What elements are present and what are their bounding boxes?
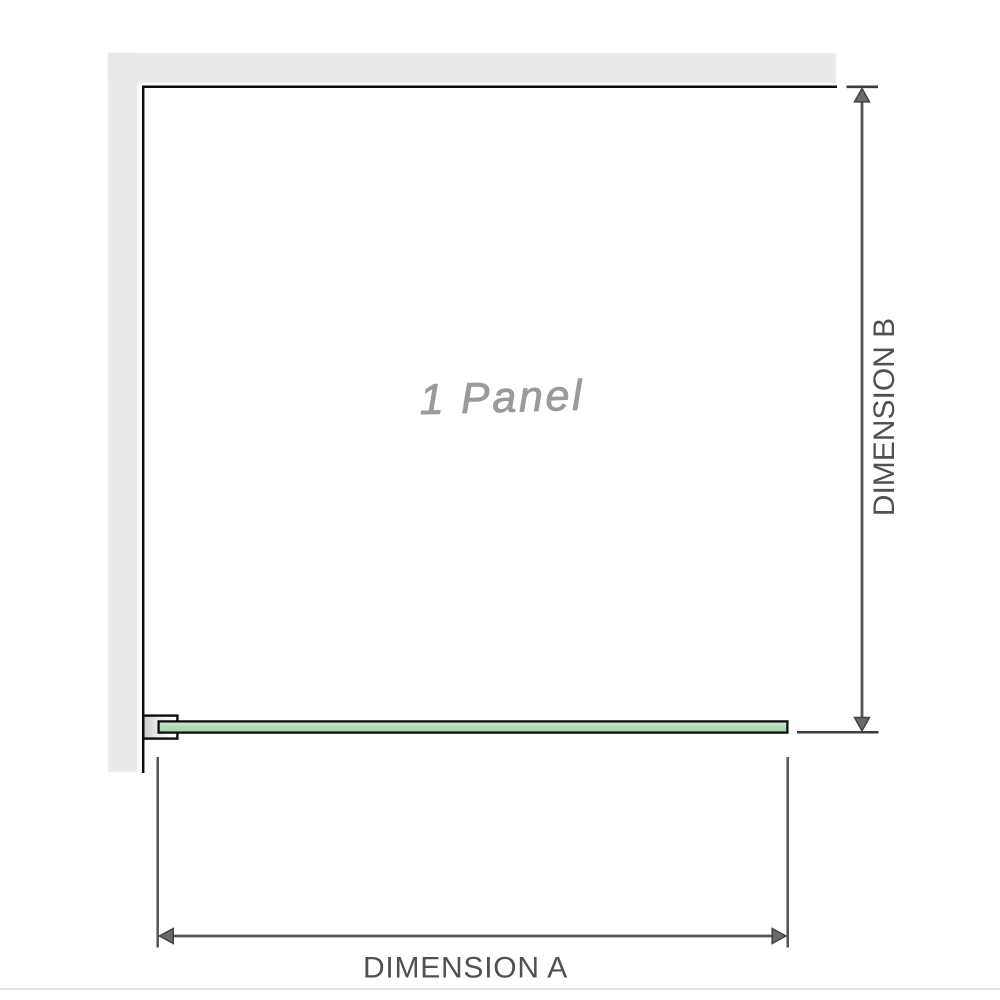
svg-text:DIMENSION B: DIMENSION B xyxy=(868,318,901,516)
svg-text:1 Panel: 1 Panel xyxy=(419,372,585,425)
svg-text:DIMENSION A: DIMENSION A xyxy=(363,952,568,985)
